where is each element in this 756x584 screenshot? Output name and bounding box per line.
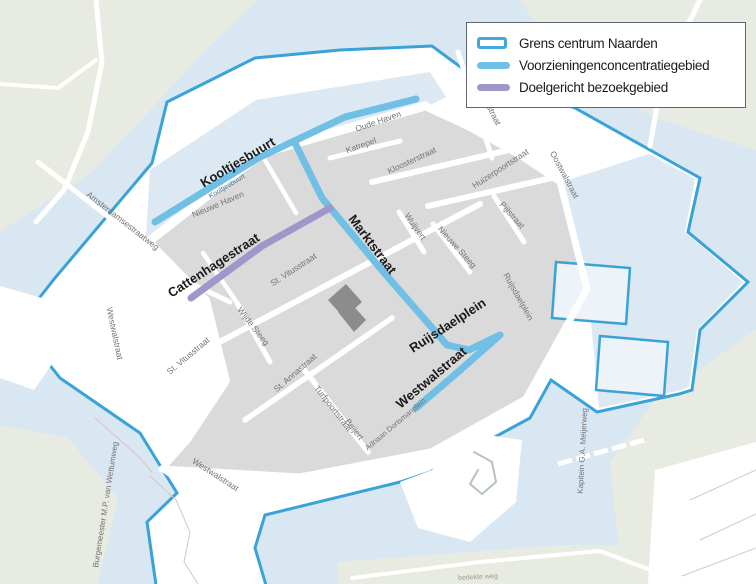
dash-1	[558, 460, 572, 464]
bottom-land-band	[338, 545, 700, 584]
legend-label-grens: Grens centrum Naarden	[519, 36, 658, 51]
legend-label-doelgericht: Doelgericht bezoekgebied	[519, 80, 668, 95]
ravelin-north	[552, 262, 630, 324]
legend-item-doelgericht: Doelgericht bezoekgebied	[477, 76, 735, 98]
legend: Grens centrum Naarden Voorzieningenconce…	[466, 22, 746, 108]
label-kapitein-meijerweg: Kapitein G.A. Meijerweg	[576, 408, 589, 494]
dash-3	[594, 450, 608, 454]
grens-outline-icon	[477, 37, 507, 49]
legend-item-voorzieningen: Voorzieningenconcentratiegebied	[477, 54, 735, 76]
voorzieningen-line-icon	[477, 62, 510, 69]
doelgericht-line-icon	[477, 84, 510, 91]
legend-item-grens: Grens centrum Naarden	[477, 32, 735, 54]
ravelin-south	[596, 336, 668, 396]
legend-label-voorzieningen: Voorzieningenconcentratiegebied	[519, 58, 709, 73]
naarden-centrum-map: KooltjesbuurtKooltjesbuurtOude HavenKatr…	[0, 0, 756, 584]
